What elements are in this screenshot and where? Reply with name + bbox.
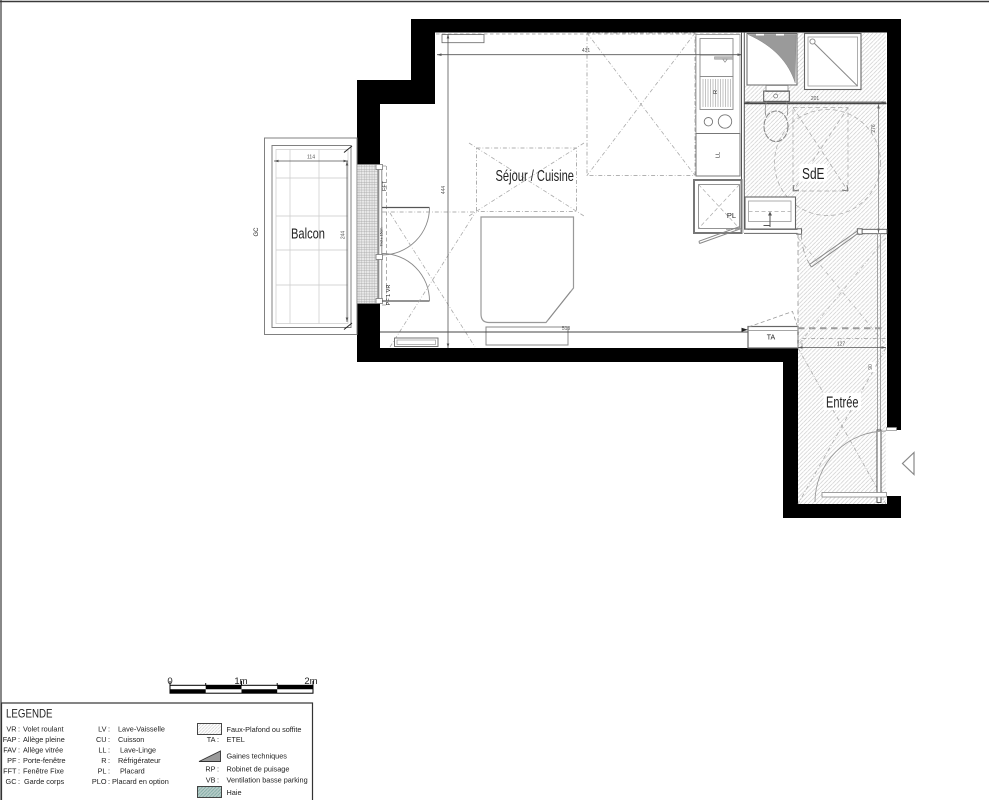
- svg-text::: :: [18, 777, 20, 786]
- svg-text:201: 201: [811, 96, 820, 102]
- svg-text::: :: [18, 756, 20, 765]
- svg-text:114: 114: [307, 155, 315, 161]
- svg-text:TA: TA: [767, 335, 776, 342]
- svg-text:Porte-fenêtre: Porte-fenêtre: [23, 756, 66, 765]
- svg-text:GC: GC: [254, 227, 260, 237]
- svg-text:PL: PL: [727, 211, 736, 220]
- svg-text:TA: TA: [207, 735, 216, 744]
- svg-text:FAP: FAP: [3, 735, 17, 744]
- svg-text:CU: CU: [96, 735, 107, 744]
- svg-text::: :: [217, 735, 219, 744]
- svg-text:FAV: FAV: [3, 746, 16, 755]
- svg-text:Lave-Vaisselle: Lave-Vaisselle: [118, 725, 165, 734]
- svg-text:R: R: [101, 756, 106, 765]
- svg-text:R: R: [713, 90, 719, 94]
- svg-text:Gaines techniques: Gaines techniques: [227, 752, 288, 761]
- svg-text:LEGENDE: LEGENDE: [6, 707, 53, 721]
- svg-text::: :: [18, 725, 20, 734]
- svg-text::: :: [108, 735, 110, 744]
- svg-text:LL: LL: [716, 152, 722, 158]
- svg-text:VB: VB: [206, 776, 216, 785]
- svg-text::: :: [18, 746, 20, 755]
- svg-text::: :: [217, 776, 219, 785]
- svg-text:90: 90: [868, 364, 874, 370]
- svg-text:Ventilation basse parking: Ventilation basse parking: [227, 776, 308, 785]
- svg-text:431: 431: [582, 48, 591, 54]
- svg-text::: :: [18, 735, 20, 744]
- svg-text:SdE: SdE: [802, 166, 825, 183]
- svg-text:LL: LL: [98, 746, 106, 755]
- svg-text:Faux-Plafond ou soffite: Faux-Plafond ou soffite: [227, 725, 302, 734]
- svg-text:Fenêtre Fixe: Fenêtre Fixe: [23, 767, 64, 776]
- svg-text:fmd ± 15cm: fmd ± 15cm: [380, 228, 384, 247]
- svg-text:Garde corps: Garde corps: [24, 777, 65, 786]
- svg-text:Cuisson: Cuisson: [118, 735, 144, 744]
- svg-text:Entrée: Entrée: [826, 395, 859, 412]
- svg-text:PF 1 VR: PF 1 VR: [386, 285, 392, 306]
- svg-text:ETEL: ETEL: [227, 735, 245, 744]
- svg-text:FFT: FFT: [3, 767, 17, 776]
- svg-text:LV: LV: [98, 725, 107, 734]
- svg-text:127: 127: [837, 342, 846, 348]
- svg-text:Haie: Haie: [227, 788, 242, 797]
- svg-text:518: 518: [562, 326, 571, 332]
- svg-text:VR: VR: [6, 725, 16, 734]
- svg-text:Allège vitrée: Allège vitrée: [23, 746, 63, 755]
- svg-text:244: 244: [341, 231, 347, 240]
- svg-text:Volet roulant: Volet roulant: [23, 725, 64, 734]
- svg-text:PL: PL: [98, 767, 107, 776]
- svg-text:Balcon: Balcon: [291, 226, 325, 243]
- svg-text:444: 444: [441, 186, 447, 195]
- svg-text:GC: GC: [6, 777, 17, 786]
- svg-text:Robinet de puisage: Robinet de puisage: [227, 765, 290, 774]
- svg-text:RP: RP: [205, 765, 215, 774]
- svg-text:Réfrigérateur: Réfrigérateur: [118, 756, 161, 765]
- svg-text::: :: [108, 777, 110, 786]
- svg-text::: :: [108, 746, 110, 755]
- svg-text::: :: [108, 756, 110, 765]
- svg-text::: :: [217, 765, 219, 774]
- svg-text::: :: [18, 767, 20, 776]
- svg-text:PLO: PLO: [92, 777, 107, 786]
- svg-text:PF: PF: [7, 756, 17, 765]
- svg-text:Allège pleine: Allège pleine: [23, 735, 65, 744]
- svg-text::: :: [108, 767, 110, 776]
- svg-text:Séjour / Cuisine: Séjour / Cuisine: [496, 168, 575, 185]
- svg-text:Placard: Placard: [120, 767, 145, 776]
- svg-text::: :: [108, 725, 110, 734]
- svg-text:Placard en option: Placard en option: [112, 777, 169, 786]
- svg-text:276: 276: [871, 124, 877, 133]
- svg-text:Lave-Linge: Lave-Linge: [120, 746, 156, 755]
- svg-text:FFT: FFT: [382, 180, 388, 191]
